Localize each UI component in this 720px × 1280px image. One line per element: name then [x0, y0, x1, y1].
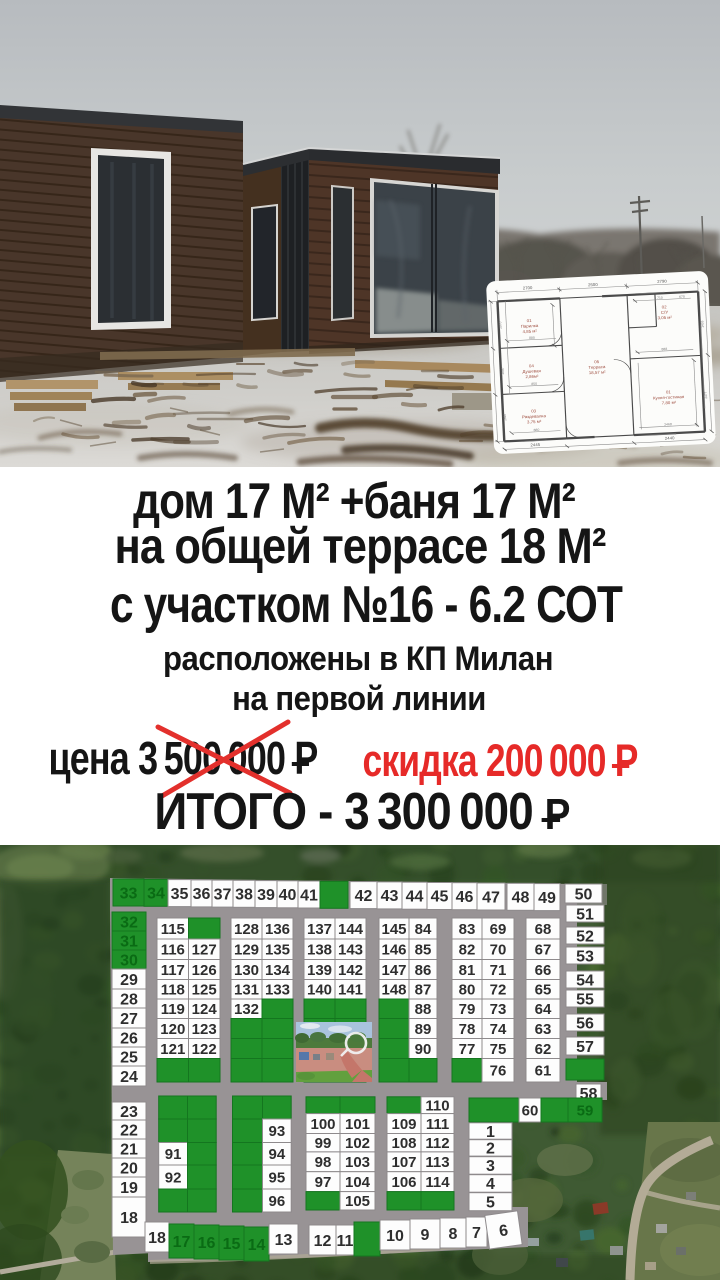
- svg-text:145: 145: [381, 921, 406, 938]
- svg-text:77: 77: [459, 1041, 476, 1058]
- svg-text:10: 10: [386, 1228, 404, 1245]
- svg-text:56: 56: [576, 1015, 594, 1032]
- svg-text:120: 120: [160, 1021, 185, 1038]
- svg-text:73: 73: [490, 1001, 507, 1018]
- svg-text:76: 76: [490, 1063, 507, 1080]
- svg-text:34: 34: [147, 886, 165, 903]
- svg-text:36: 36: [193, 886, 211, 903]
- svg-text:24: 24: [120, 1069, 138, 1086]
- svg-text:57: 57: [576, 1039, 594, 1056]
- svg-text:84: 84: [415, 921, 432, 938]
- svg-text:143: 143: [338, 942, 363, 959]
- svg-text:62: 62: [535, 1041, 552, 1058]
- svg-text:61: 61: [535, 1063, 552, 1080]
- svg-text:25: 25: [120, 1049, 138, 1066]
- svg-text:129: 129: [234, 942, 259, 959]
- svg-text:146: 146: [381, 942, 406, 959]
- svg-text:12: 12: [314, 1233, 332, 1250]
- svg-text:135: 135: [265, 942, 290, 959]
- svg-text:3: 3: [486, 1158, 495, 1175]
- svg-text:127: 127: [192, 942, 217, 959]
- svg-text:79: 79: [459, 1001, 476, 1018]
- svg-text:91: 91: [165, 1146, 182, 1163]
- svg-text:119: 119: [161, 1001, 185, 1018]
- svg-text:22: 22: [120, 1122, 138, 1139]
- svg-text:123: 123: [192, 1021, 217, 1038]
- svg-text:96: 96: [269, 1193, 286, 1210]
- svg-text:147: 147: [381, 962, 406, 979]
- svg-text:65: 65: [535, 982, 552, 999]
- svg-text:117: 117: [161, 962, 185, 979]
- svg-text:5: 5: [486, 1195, 495, 1212]
- svg-text:63: 63: [535, 1021, 552, 1038]
- svg-text:18: 18: [148, 1230, 166, 1247]
- svg-text:136: 136: [265, 921, 290, 938]
- svg-text:103: 103: [345, 1154, 370, 1171]
- svg-text:121: 121: [160, 1041, 185, 1058]
- svg-text:69: 69: [490, 921, 507, 938]
- svg-text:81: 81: [459, 962, 476, 979]
- svg-text:8: 8: [449, 1226, 458, 1243]
- svg-text:140: 140: [307, 982, 332, 999]
- svg-text:85: 85: [415, 942, 432, 959]
- svg-text:53: 53: [576, 948, 594, 965]
- svg-text:89: 89: [415, 1021, 432, 1038]
- svg-text:55: 55: [576, 991, 594, 1008]
- svg-text:67: 67: [535, 942, 552, 959]
- svg-text:93: 93: [269, 1123, 286, 1140]
- svg-text:31: 31: [120, 933, 138, 950]
- svg-text:64: 64: [535, 1001, 552, 1018]
- svg-text:101: 101: [345, 1116, 370, 1133]
- svg-text:19: 19: [120, 1180, 138, 1197]
- svg-text:51: 51: [576, 906, 594, 923]
- svg-text:88: 88: [415, 1001, 432, 1018]
- svg-text:32: 32: [120, 914, 138, 931]
- svg-text:26: 26: [120, 1030, 138, 1047]
- svg-text:98: 98: [315, 1154, 332, 1171]
- svg-text:71: 71: [490, 962, 507, 979]
- svg-text:38: 38: [235, 887, 253, 904]
- svg-text:11: 11: [337, 1233, 354, 1250]
- svg-text:125: 125: [192, 982, 217, 999]
- svg-text:17: 17: [173, 1234, 191, 1251]
- svg-text:39: 39: [257, 887, 275, 904]
- svg-text:122: 122: [192, 1041, 217, 1058]
- svg-text:14: 14: [248, 1237, 266, 1254]
- svg-text:108: 108: [391, 1135, 416, 1152]
- svg-text:97: 97: [315, 1174, 332, 1191]
- svg-text:94: 94: [269, 1146, 286, 1163]
- svg-text:116: 116: [161, 942, 185, 959]
- svg-text:60: 60: [522, 1102, 539, 1119]
- svg-text:139: 139: [307, 962, 332, 979]
- svg-text:107: 107: [391, 1154, 416, 1171]
- svg-text:16: 16: [198, 1235, 216, 1252]
- svg-text:7: 7: [472, 1225, 481, 1242]
- svg-text:23: 23: [120, 1104, 138, 1121]
- svg-text:105: 105: [345, 1193, 370, 1210]
- svg-text:138: 138: [307, 942, 332, 959]
- svg-text:47: 47: [482, 889, 500, 906]
- svg-text:2: 2: [486, 1141, 495, 1158]
- svg-text:50: 50: [575, 886, 593, 903]
- svg-text:68: 68: [535, 921, 552, 938]
- svg-text:131: 131: [234, 982, 259, 999]
- svg-text:30: 30: [120, 952, 138, 969]
- svg-text:82: 82: [459, 942, 476, 959]
- svg-text:144: 144: [338, 921, 364, 938]
- svg-text:102: 102: [345, 1135, 370, 1152]
- svg-text:109: 109: [391, 1116, 416, 1133]
- svg-text:106: 106: [391, 1174, 416, 1191]
- svg-text:70: 70: [490, 942, 507, 959]
- svg-text:54: 54: [576, 972, 594, 989]
- svg-text:33: 33: [120, 885, 138, 902]
- svg-text:137: 137: [307, 921, 332, 938]
- svg-text:29: 29: [120, 972, 138, 989]
- svg-text:21: 21: [120, 1141, 138, 1158]
- svg-text:15: 15: [223, 1236, 241, 1253]
- svg-text:1: 1: [486, 1124, 495, 1141]
- svg-text:86: 86: [415, 962, 432, 979]
- svg-text:72: 72: [490, 982, 507, 999]
- svg-text:48: 48: [512, 890, 530, 907]
- svg-text:142: 142: [338, 962, 363, 979]
- svg-text:49: 49: [538, 890, 556, 907]
- svg-text:43: 43: [381, 888, 399, 905]
- svg-text:130: 130: [234, 962, 259, 979]
- svg-text:41: 41: [300, 887, 318, 904]
- svg-text:92: 92: [165, 1169, 182, 1186]
- svg-text:75: 75: [490, 1041, 507, 1058]
- svg-text:78: 78: [459, 1021, 476, 1038]
- svg-text:100: 100: [310, 1116, 335, 1133]
- svg-text:95: 95: [269, 1169, 286, 1186]
- svg-text:59: 59: [577, 1102, 594, 1119]
- svg-text:66: 66: [535, 962, 552, 979]
- svg-text:44: 44: [406, 888, 424, 905]
- svg-text:112: 112: [425, 1135, 449, 1152]
- svg-text:110: 110: [425, 1098, 449, 1115]
- svg-text:28: 28: [120, 991, 138, 1008]
- svg-text:74: 74: [490, 1021, 507, 1038]
- svg-text:118: 118: [161, 982, 185, 999]
- svg-text:104: 104: [345, 1174, 371, 1191]
- svg-text:111: 111: [426, 1116, 449, 1133]
- svg-text:148: 148: [381, 982, 406, 999]
- svg-text:128: 128: [234, 921, 259, 938]
- svg-text:114: 114: [425, 1174, 450, 1191]
- svg-text:35: 35: [171, 886, 189, 903]
- svg-text:18: 18: [120, 1210, 138, 1227]
- svg-text:9: 9: [421, 1227, 430, 1244]
- svg-text:90: 90: [415, 1041, 432, 1058]
- svg-text:126: 126: [192, 962, 217, 979]
- svg-text:124: 124: [192, 1001, 218, 1018]
- svg-text:52: 52: [576, 928, 594, 945]
- svg-text:132: 132: [234, 1001, 259, 1018]
- svg-text:80: 80: [459, 982, 476, 999]
- svg-text:133: 133: [265, 982, 290, 999]
- svg-text:141: 141: [338, 982, 363, 999]
- svg-text:40: 40: [279, 887, 297, 904]
- svg-text:13: 13: [275, 1232, 293, 1249]
- svg-text:115: 115: [161, 921, 185, 938]
- svg-text:83: 83: [459, 921, 476, 938]
- svg-text:99: 99: [315, 1135, 332, 1152]
- svg-text:134: 134: [265, 962, 291, 979]
- svg-text:46: 46: [456, 889, 474, 906]
- svg-text:45: 45: [431, 889, 449, 906]
- svg-text:87: 87: [415, 982, 432, 999]
- svg-text:4: 4: [486, 1176, 495, 1193]
- svg-text:42: 42: [355, 888, 373, 905]
- svg-text:113: 113: [425, 1154, 449, 1171]
- svg-text:37: 37: [214, 886, 232, 903]
- svg-text:27: 27: [120, 1011, 138, 1028]
- svg-text:20: 20: [120, 1160, 138, 1177]
